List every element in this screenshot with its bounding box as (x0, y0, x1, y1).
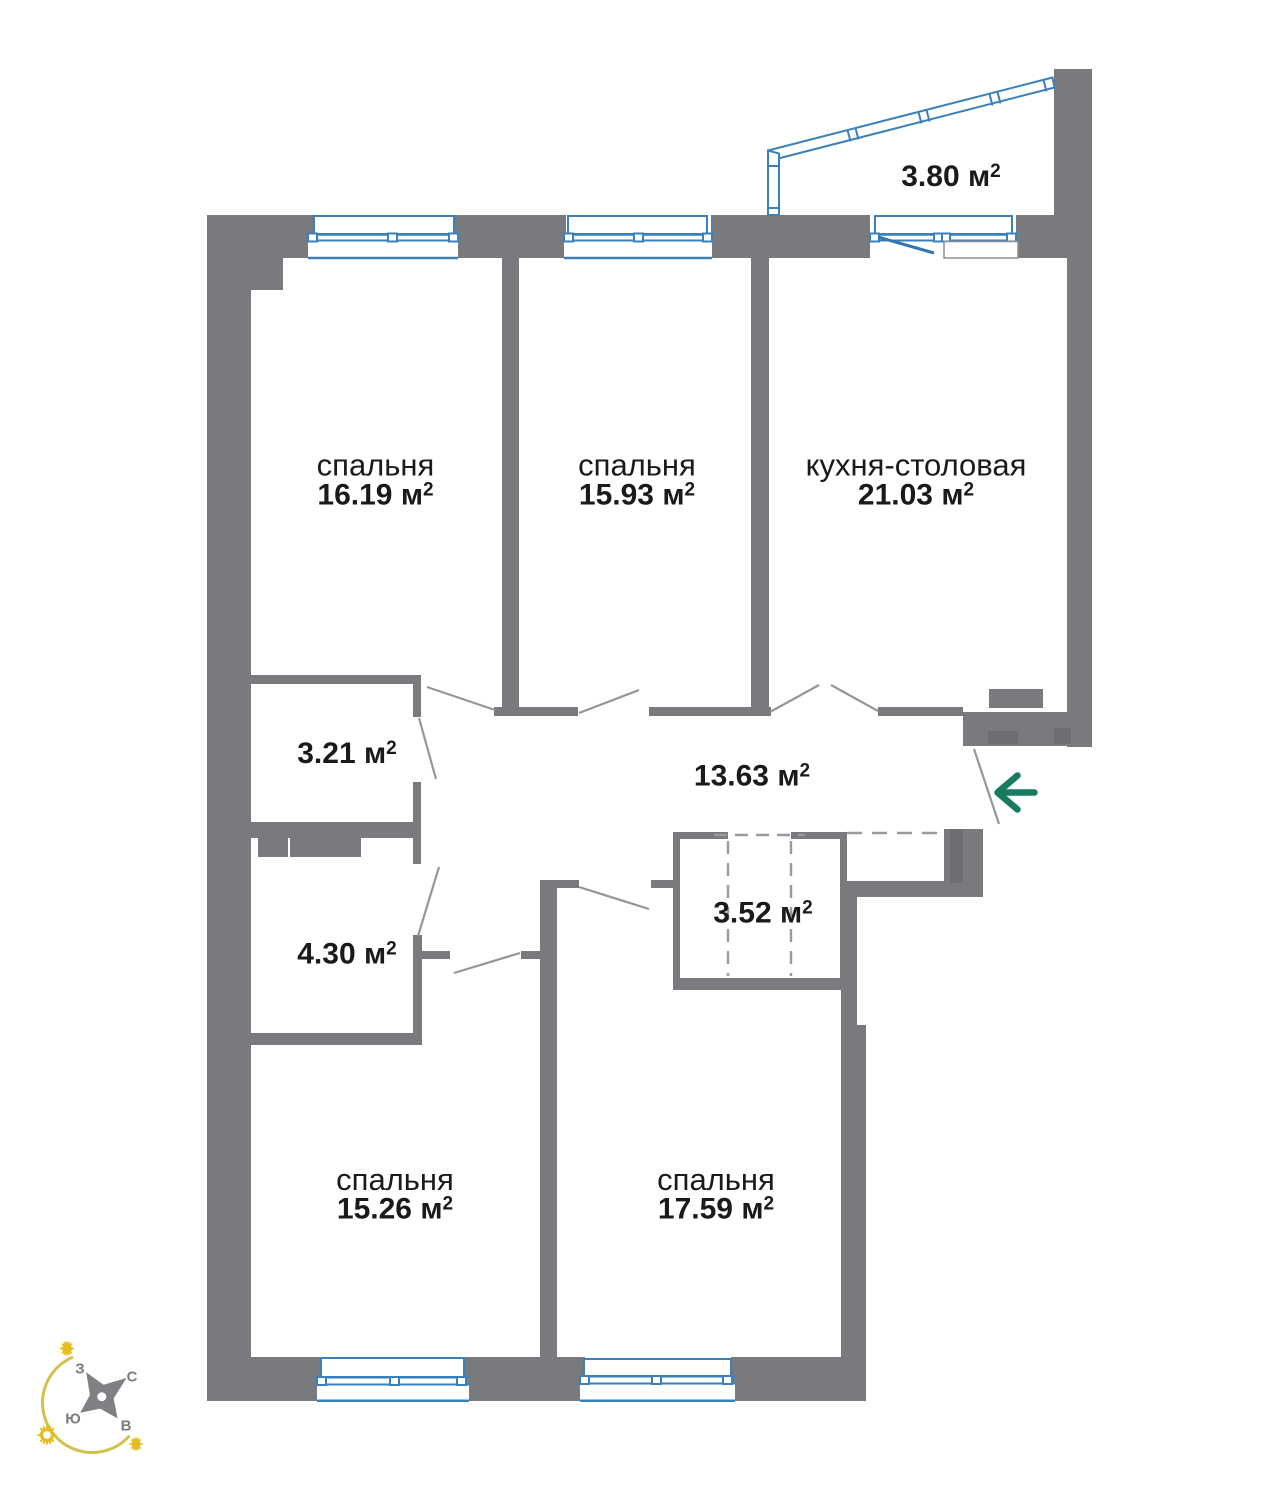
svg-text:15.26 м2: 15.26 м2 (337, 1193, 453, 1226)
svg-text:С: С (127, 1369, 138, 1386)
svg-text:3.80 м2: 3.80 м2 (901, 160, 1001, 193)
svg-text:15.93 м2: 15.93 м2 (579, 479, 695, 512)
svg-text:кухня-столовая: кухня-столовая (806, 448, 1027, 483)
svg-text:21.03 м2: 21.03 м2 (858, 479, 974, 512)
svg-text:спальня: спальня (317, 448, 435, 483)
svg-text:3.52 м2: 3.52 м2 (713, 897, 813, 930)
svg-text:17.59 м2: 17.59 м2 (658, 1193, 774, 1226)
svg-text:З: З (75, 1361, 84, 1378)
svg-text:3.21 м2: 3.21 м2 (297, 737, 397, 770)
svg-text:13.63 м2: 13.63 м2 (694, 760, 810, 793)
svg-text:16.19 м2: 16.19 м2 (317, 479, 433, 512)
svg-text:В: В (121, 1418, 132, 1435)
svg-text:4.30 м2: 4.30 м2 (297, 938, 397, 971)
svg-text:спальня: спальня (578, 448, 696, 483)
svg-text:Ю: Ю (65, 1411, 80, 1428)
